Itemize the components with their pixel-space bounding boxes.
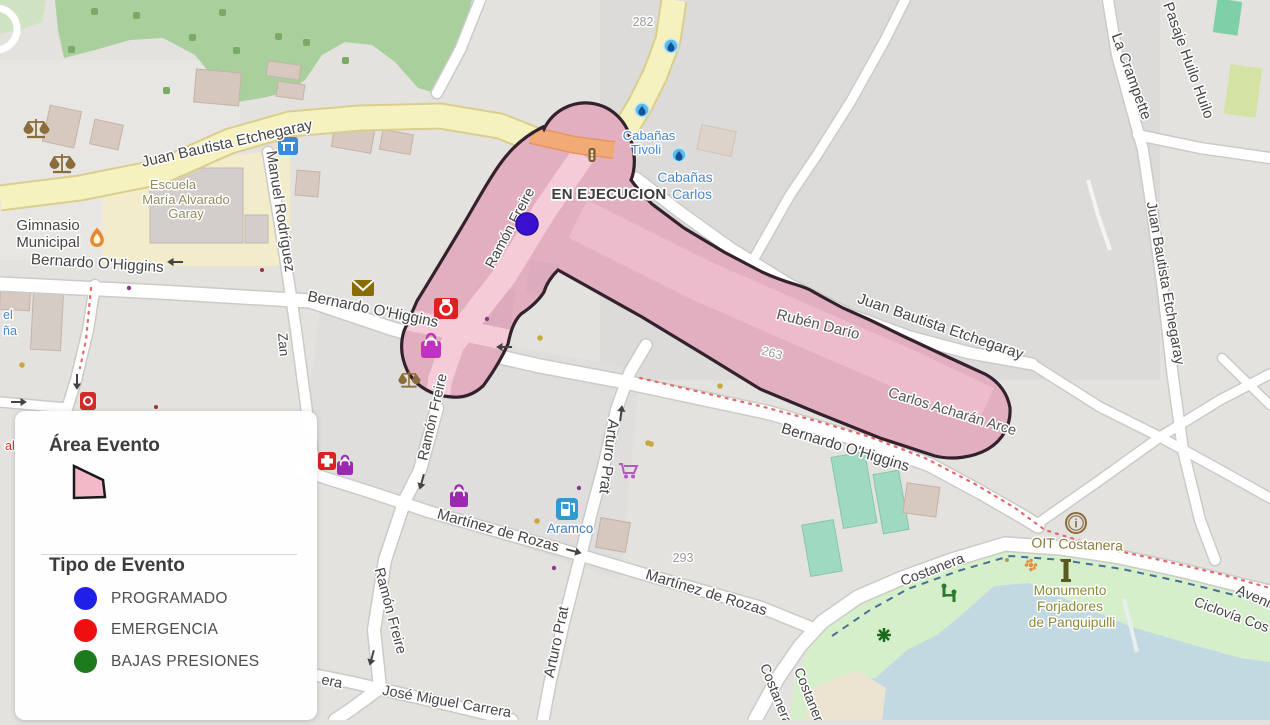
svg-text:Aramco: Aramco <box>547 521 594 536</box>
svg-text:Monumento: Monumento <box>1034 583 1107 598</box>
svg-text:al: al <box>5 439 15 453</box>
svg-text:Cabañas: Cabañas <box>623 128 676 143</box>
svg-text:EN EJECUCION: EN EJECUCION <box>552 186 667 203</box>
svg-text:el: el <box>3 308 13 322</box>
svg-text:Garay: Garay <box>168 206 204 221</box>
svg-text:OIT Costanera: OIT Costanera <box>1031 534 1123 553</box>
svg-text:Forjadores: Forjadores <box>1037 599 1103 614</box>
svg-text:Carlos: Carlos <box>672 187 712 202</box>
svg-text:Municipal: Municipal <box>16 234 79 251</box>
svg-text:Escuela: Escuela <box>150 177 197 192</box>
svg-text:María Alvarado: María Alvarado <box>142 192 229 207</box>
svg-text:ña: ña <box>3 324 17 338</box>
svg-text:293: 293 <box>673 551 694 565</box>
svg-text:282: 282 <box>633 15 654 29</box>
svg-text:Gimnasio: Gimnasio <box>16 217 79 234</box>
svg-text:Cabañas: Cabañas <box>657 170 712 185</box>
svg-text:i: i <box>1074 517 1077 531</box>
svg-text:de Panguipulli: de Panguipulli <box>1029 615 1116 630</box>
svg-text:Zan: Zan <box>275 332 292 356</box>
svg-text:Tivoli: Tivoli <box>631 142 661 157</box>
